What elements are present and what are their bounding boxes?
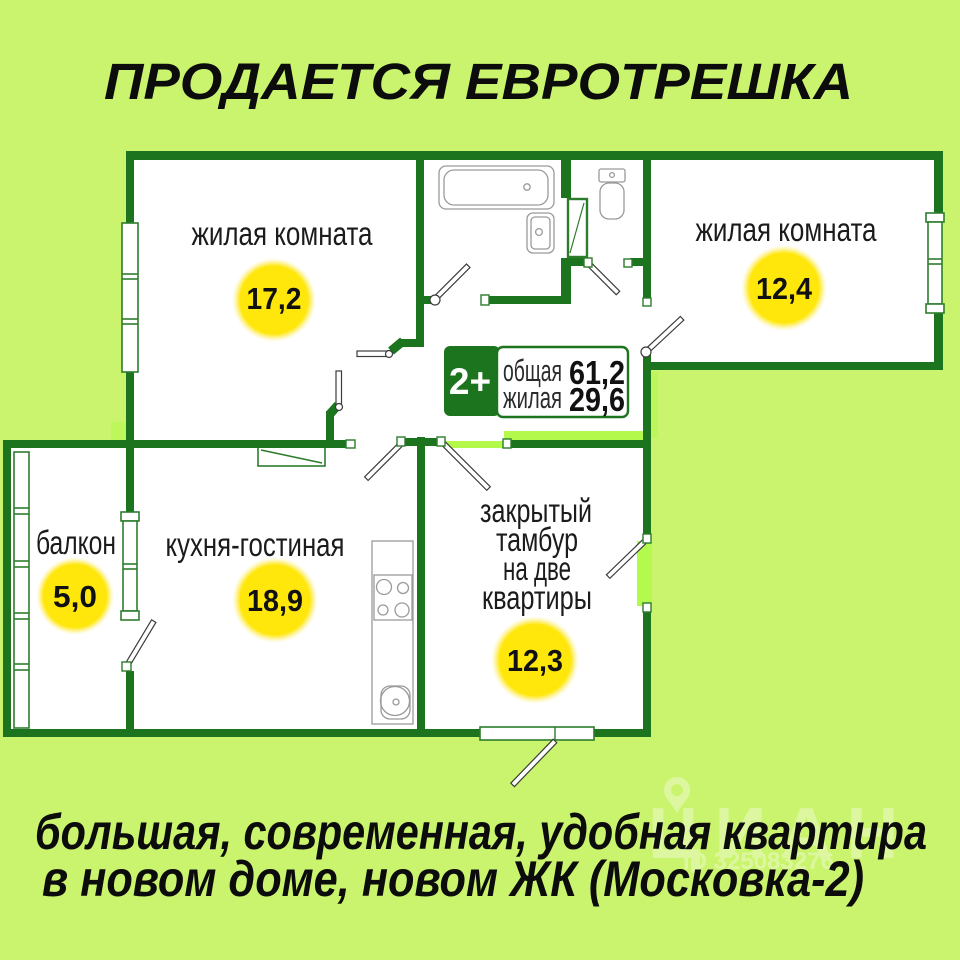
- svg-text:29,6: 29,6: [569, 381, 625, 418]
- svg-text:кухня-гостиная: кухня-гостиная: [166, 526, 345, 563]
- svg-text:2+: 2+: [449, 361, 491, 402]
- svg-text:ПРОДАЕТСЯ ЕВРОТРЕШКА: ПРОДАЕТСЯ ЕВРОТРЕШКА: [104, 53, 853, 110]
- svg-text:12,3: 12,3: [507, 643, 563, 678]
- svg-text:жилая комната: жилая комната: [192, 215, 374, 252]
- svg-text:18,9: 18,9: [247, 583, 303, 618]
- svg-text:5,0: 5,0: [53, 579, 97, 614]
- svg-text:17,2: 17,2: [247, 281, 302, 316]
- svg-text:в новом доме, новом ЖК (Москов: в новом доме, новом ЖК (Московка-2): [42, 851, 864, 907]
- svg-text:12,4: 12,4: [756, 271, 813, 306]
- svg-text:жилая комната: жилая комната: [696, 211, 878, 248]
- svg-text:балкон: балкон: [36, 524, 116, 561]
- svg-text:квартиры: квартиры: [482, 579, 592, 616]
- svg-text:жилая: жилая: [503, 380, 562, 415]
